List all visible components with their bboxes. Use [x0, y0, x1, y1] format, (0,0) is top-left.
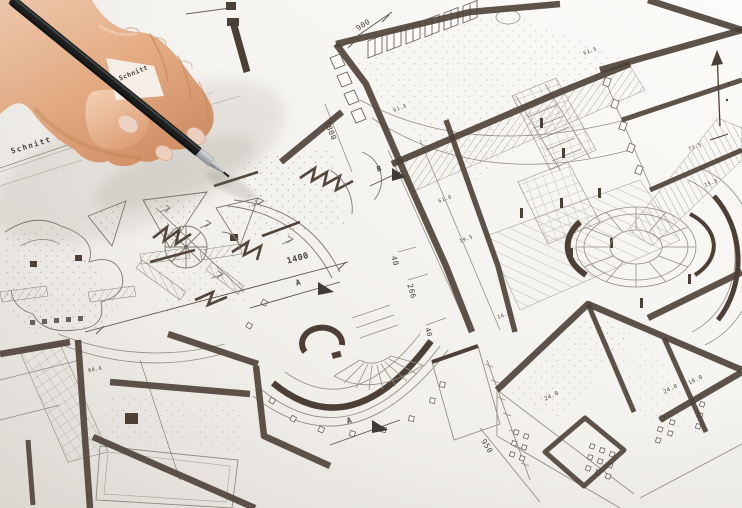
hand-holding-pencil: [0, 0, 742, 508]
photo-canvas: Schnitt A - A900180061.572.515.561.561.0…: [0, 0, 742, 508]
pencil-lead: [223, 172, 230, 178]
